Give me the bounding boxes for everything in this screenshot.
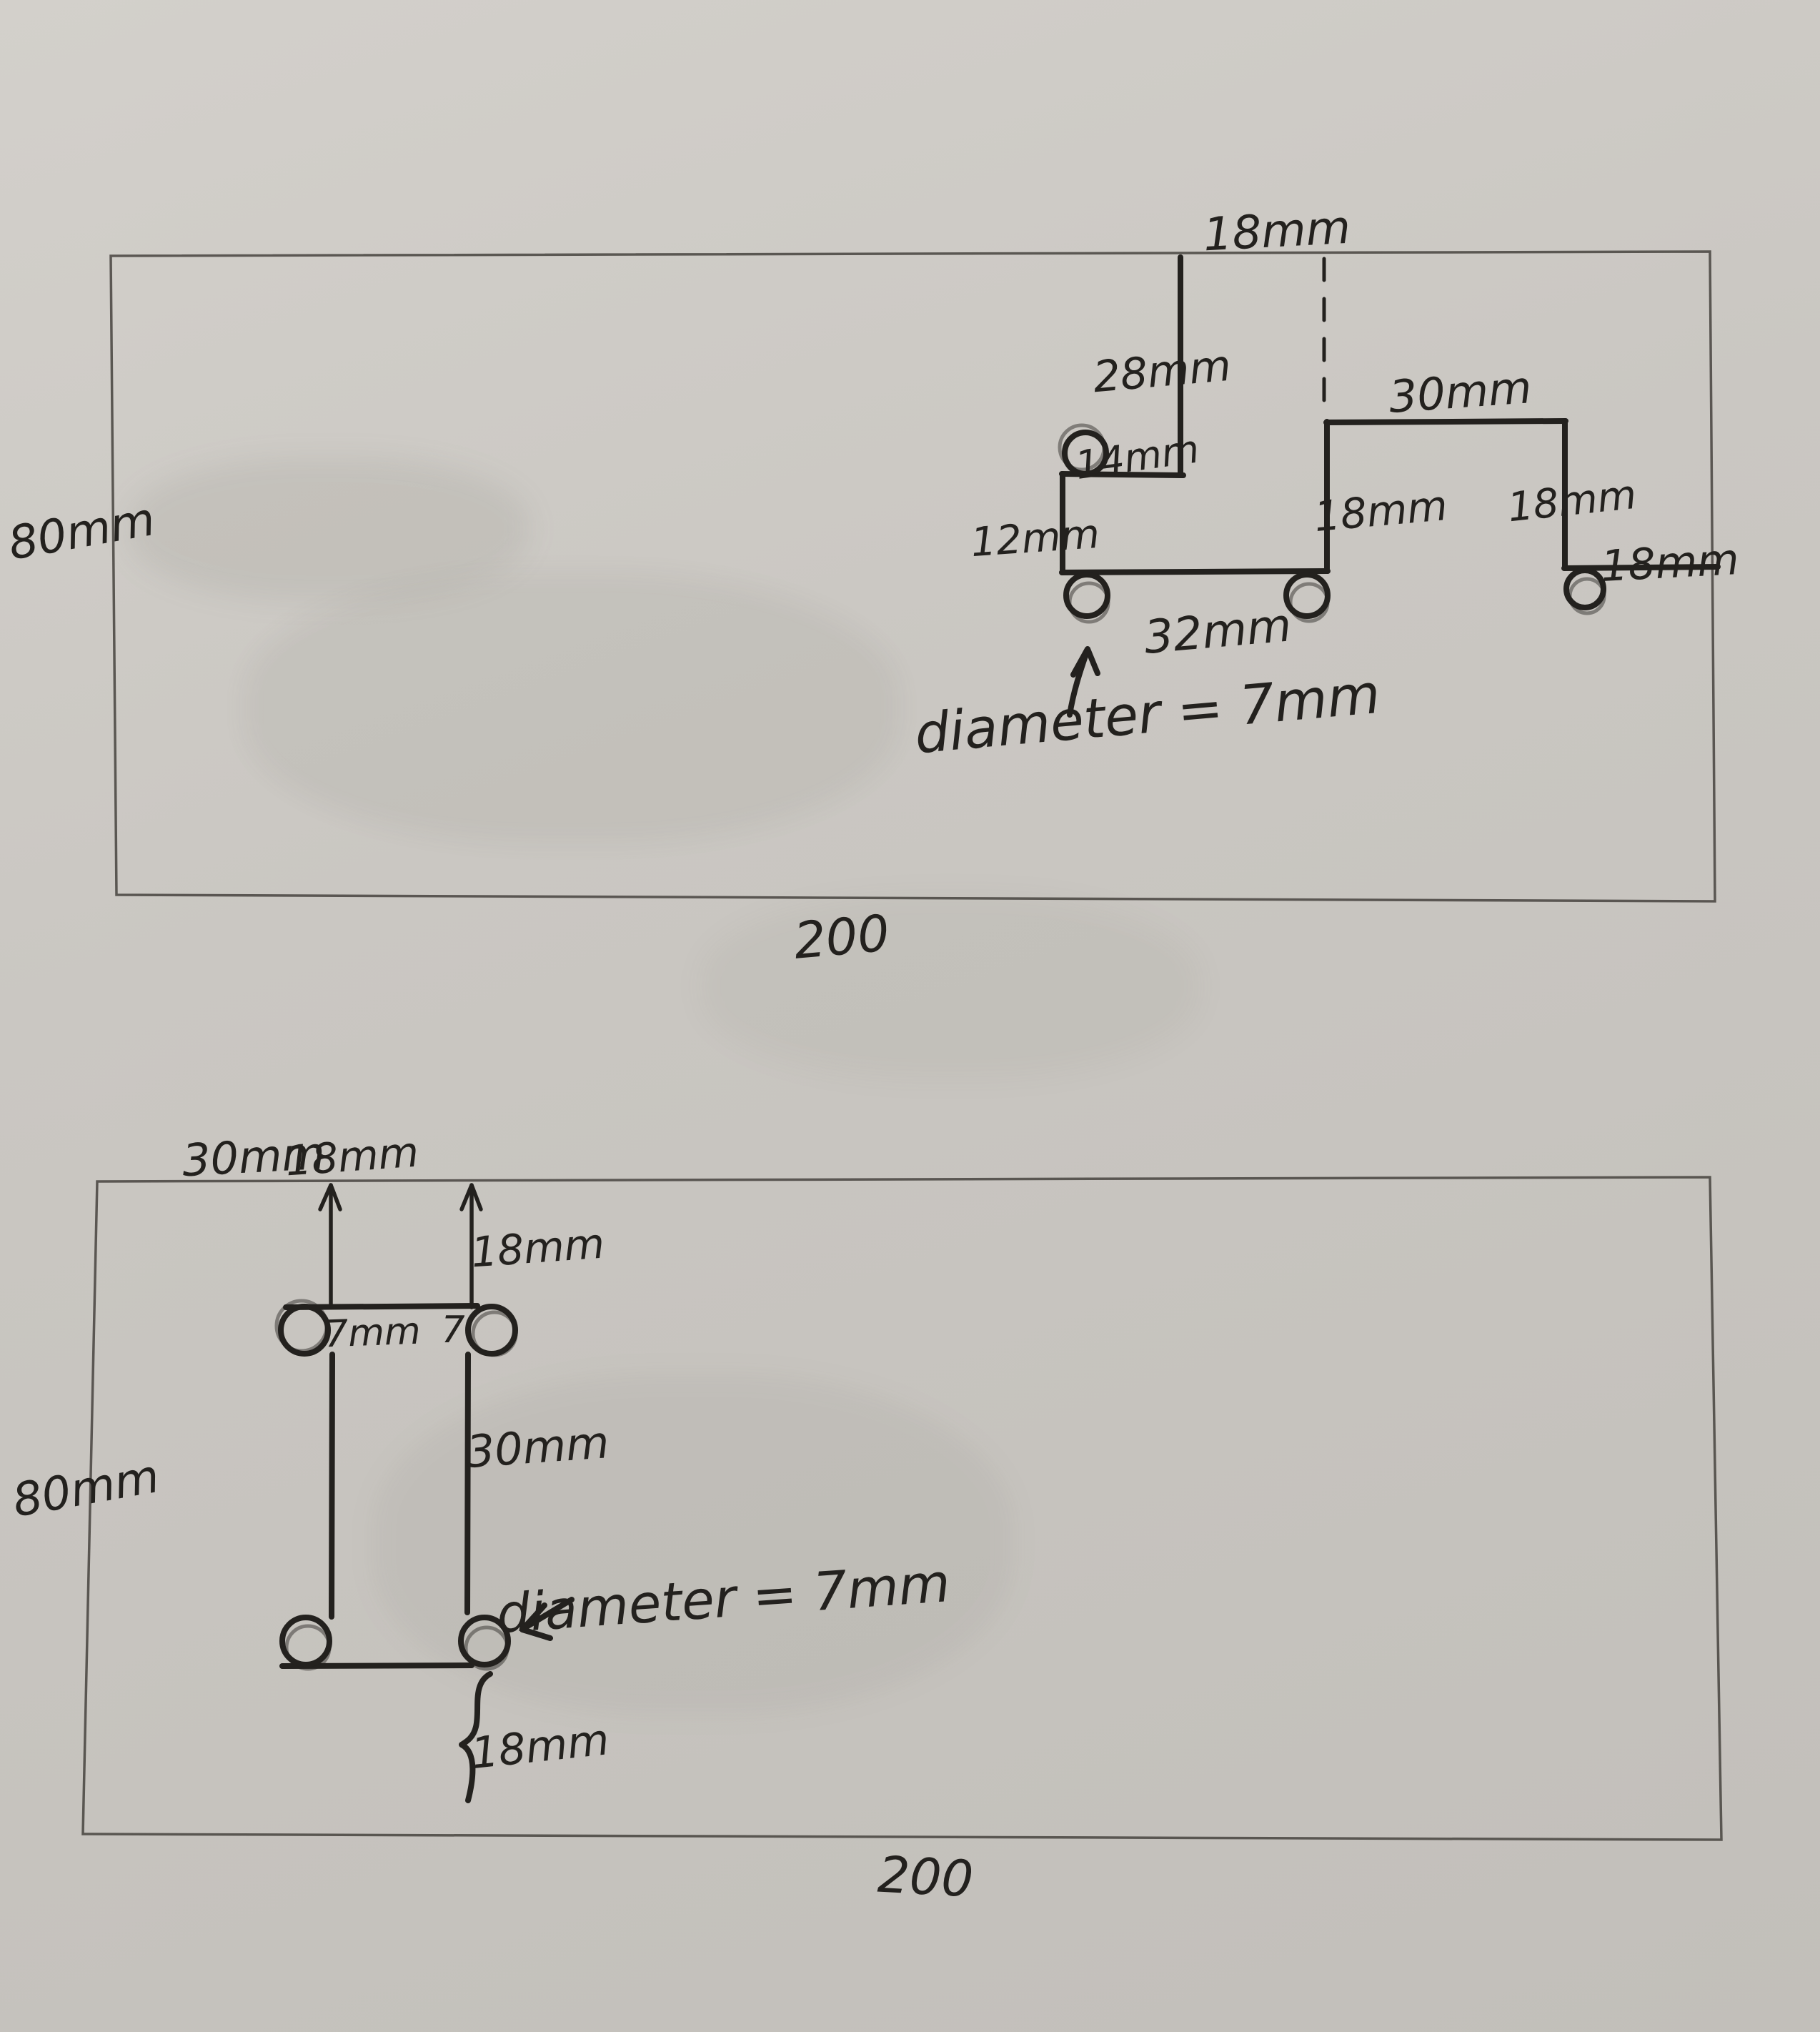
dim-label-bottom-offset: 18mm [469,1715,612,1779]
dim-label-bottom-width: 32mm [1142,599,1293,665]
dim-label-right-end-width: 18mm [1600,535,1741,592]
plate-outline-bottom [83,1177,1721,1840]
sketch-canvas: 18mm 28mm 14mm 12mm 32mm 18mm 30mm 18mm … [0,0,1820,2032]
dim-label-top-gap: 18mm [1202,202,1352,262]
dim-label-slot-height: 30mm [464,1416,610,1478]
diameter-note-bottom: diameter = 7mm [494,1552,952,1645]
diameter-note-top: diameter = 7mm [913,662,1383,766]
slot-right-edge [467,1354,468,1612]
slot-hole-top-right-echo [473,1312,516,1355]
hole-label-left: 7mm [324,1310,421,1357]
dim-label-top-offset: 18mm [469,1219,606,1277]
bottom-width-line [1062,571,1328,573]
top-drawing: 18mm 28mm 14mm 12mm 32mm 18mm 30mm 18mm … [4,202,1740,971]
plate-width-label-bottom: 200 [876,1845,975,1909]
hole-label-right: 7 [441,1309,464,1352]
plate-outline-top [111,252,1715,901]
dim-label-right-top-width: 30mm [1387,361,1533,423]
plate-width-label-top: 200 [792,903,892,970]
paper-sheet: 18mm 28mm 14mm 12mm 32mm 18mm 30mm 18mm … [0,0,1820,2032]
plate-height-label-bottom: 80mm [9,1450,163,1528]
dim-label-notch-depth: 28mm [1091,341,1233,403]
dim-label-mid-rise: 18mm [1312,481,1449,541]
bottom-drawing: 30mm 18mm 18mm 7mm 7 30mm diameter = 7mm… [9,1127,1721,1909]
dim-label-left-edge: 12mm [969,511,1100,566]
right-top-line [1326,421,1566,422]
dim-label-right-drop: 18mm [1506,472,1639,531]
slot-left-edge [332,1354,332,1617]
dim-label-slot-width: 18mm [284,1128,420,1186]
plate-height-label-top: 80mm [4,493,159,571]
